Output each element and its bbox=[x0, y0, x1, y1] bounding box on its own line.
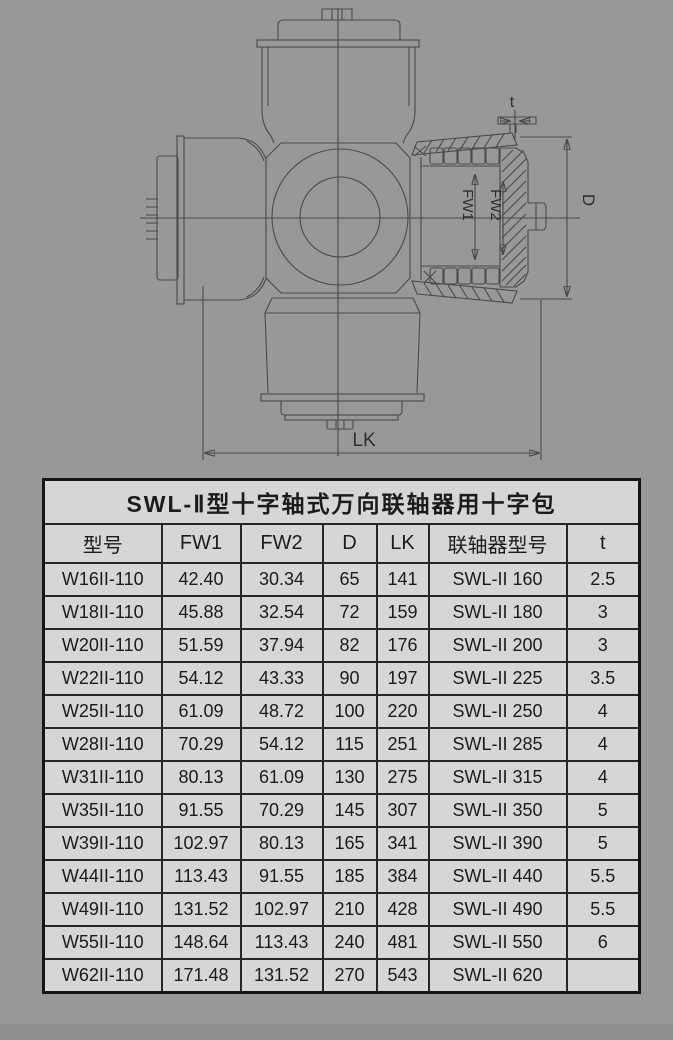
value-cell: SWL-II 160 bbox=[429, 563, 567, 596]
table-title-row: SWL-Ⅱ型十字轴式万向联轴器用十字包 bbox=[44, 480, 640, 525]
model-cell: W20II-110 bbox=[44, 629, 162, 662]
dimension-fw2: FW2 bbox=[487, 182, 504, 254]
column-header: FW2 bbox=[241, 524, 323, 563]
model-cell: W18II-110 bbox=[44, 596, 162, 629]
value-cell: 65 bbox=[323, 563, 377, 596]
table-body: W16II-11042.4030.3465141SWL-II 1602.5W18… bbox=[44, 563, 640, 993]
value-cell: 70.29 bbox=[162, 728, 241, 761]
table-row: W16II-11042.4030.3465141SWL-II 1602.5 bbox=[44, 563, 640, 596]
value-cell: 481 bbox=[377, 926, 429, 959]
value-cell: 4 bbox=[567, 761, 640, 794]
value-cell: 4 bbox=[567, 728, 640, 761]
value-cell: 102.97 bbox=[241, 893, 323, 926]
specification-table: SWL-Ⅱ型十字轴式万向联轴器用十字包 型号FW1FW2DLK联轴器型号t W1… bbox=[42, 478, 641, 994]
model-cell: W35II-110 bbox=[44, 794, 162, 827]
value-cell: 131.52 bbox=[241, 959, 323, 993]
column-header: FW1 bbox=[162, 524, 241, 563]
value-cell bbox=[567, 959, 640, 993]
dimension-lk: LK bbox=[203, 286, 541, 460]
model-cell: W49II-110 bbox=[44, 893, 162, 926]
model-cell: W62II-110 bbox=[44, 959, 162, 993]
value-cell: 61.09 bbox=[241, 761, 323, 794]
value-cell: SWL-II 440 bbox=[429, 860, 567, 893]
d-label: D bbox=[579, 194, 598, 206]
value-cell: 3.5 bbox=[567, 662, 640, 695]
value-cell: SWL-II 285 bbox=[429, 728, 567, 761]
catalog-page: t FW1 FW2 D LK bbox=[0, 0, 673, 1040]
value-cell: 171.48 bbox=[162, 959, 241, 993]
value-cell: 3 bbox=[567, 596, 640, 629]
dimension-fw1: FW1 bbox=[459, 175, 476, 259]
value-cell: 102.97 bbox=[162, 827, 241, 860]
technical-drawing: t FW1 FW2 D LK bbox=[0, 0, 673, 478]
model-cell: W28II-110 bbox=[44, 728, 162, 761]
value-cell: 307 bbox=[377, 794, 429, 827]
value-cell: SWL-II 250 bbox=[429, 695, 567, 728]
value-cell: SWL-II 490 bbox=[429, 893, 567, 926]
value-cell: 54.12 bbox=[241, 728, 323, 761]
value-cell: 185 bbox=[323, 860, 377, 893]
value-cell: 91.55 bbox=[162, 794, 241, 827]
model-cell: W55II-110 bbox=[44, 926, 162, 959]
value-cell: 543 bbox=[377, 959, 429, 993]
model-cell: W16II-110 bbox=[44, 563, 162, 596]
value-cell: 100 bbox=[323, 695, 377, 728]
value-cell: 82 bbox=[323, 629, 377, 662]
table-row: W62II-110171.48131.52270543SWL-II 620 bbox=[44, 959, 640, 993]
value-cell: SWL-II 390 bbox=[429, 827, 567, 860]
value-cell: 159 bbox=[377, 596, 429, 629]
value-cell: 54.12 bbox=[162, 662, 241, 695]
value-cell: 113.43 bbox=[241, 926, 323, 959]
value-cell: SWL-II 620 bbox=[429, 959, 567, 993]
model-cell: W25II-110 bbox=[44, 695, 162, 728]
value-cell: 32.54 bbox=[241, 596, 323, 629]
column-header: LK bbox=[377, 524, 429, 563]
value-cell: 384 bbox=[377, 860, 429, 893]
table-row: W35II-11091.5570.29145307SWL-II 3505 bbox=[44, 794, 640, 827]
value-cell: 197 bbox=[377, 662, 429, 695]
model-cell: W39II-110 bbox=[44, 827, 162, 860]
lk-label: LK bbox=[352, 430, 376, 451]
value-cell: 5 bbox=[567, 827, 640, 860]
right-bearing-section bbox=[412, 117, 546, 303]
table-row: W18II-11045.8832.5472159SWL-II 1803 bbox=[44, 596, 640, 629]
value-cell: 5 bbox=[567, 794, 640, 827]
fw2-label: FW2 bbox=[487, 189, 504, 221]
t-label: t bbox=[510, 94, 515, 111]
value-cell: 30.34 bbox=[241, 563, 323, 596]
column-header: D bbox=[323, 524, 377, 563]
model-cell: W44II-110 bbox=[44, 860, 162, 893]
table-row: W49II-110131.52102.97210428SWL-II 4905.5 bbox=[44, 893, 640, 926]
table-title: SWL-Ⅱ型十字轴式万向联轴器用十字包 bbox=[44, 480, 640, 525]
value-cell: 130 bbox=[323, 761, 377, 794]
value-cell: 6 bbox=[567, 926, 640, 959]
table-row: W25II-11061.0948.72100220SWL-II 2504 bbox=[44, 695, 640, 728]
value-cell: 240 bbox=[323, 926, 377, 959]
value-cell: 90 bbox=[323, 662, 377, 695]
value-cell: SWL-II 225 bbox=[429, 662, 567, 695]
value-cell: 428 bbox=[377, 893, 429, 926]
value-cell: 70.29 bbox=[241, 794, 323, 827]
table-row: W20II-11051.5937.9482176SWL-II 2003 bbox=[44, 629, 640, 662]
value-cell: 165 bbox=[323, 827, 377, 860]
column-header: 型号 bbox=[44, 524, 162, 563]
value-cell: SWL-II 350 bbox=[429, 794, 567, 827]
value-cell: 145 bbox=[323, 794, 377, 827]
value-cell: 270 bbox=[323, 959, 377, 993]
value-cell: 2.5 bbox=[567, 563, 640, 596]
value-cell: 275 bbox=[377, 761, 429, 794]
model-cell: W22II-110 bbox=[44, 662, 162, 695]
value-cell: 113.43 bbox=[162, 860, 241, 893]
value-cell: 80.13 bbox=[162, 761, 241, 794]
value-cell: 61.09 bbox=[162, 695, 241, 728]
value-cell: 3 bbox=[567, 629, 640, 662]
table-row: W28II-11070.2954.12115251SWL-II 2854 bbox=[44, 728, 640, 761]
value-cell: 148.64 bbox=[162, 926, 241, 959]
left-bearing-cup bbox=[146, 136, 266, 304]
value-cell: 115 bbox=[323, 728, 377, 761]
bottom-bearing-cup bbox=[261, 298, 424, 429]
value-cell: 141 bbox=[377, 563, 429, 596]
value-cell: 341 bbox=[377, 827, 429, 860]
model-cell: W31II-110 bbox=[44, 761, 162, 794]
value-cell: SWL-II 180 bbox=[429, 596, 567, 629]
value-cell: 43.33 bbox=[241, 662, 323, 695]
table-row: W22II-11054.1243.3390197SWL-II 2253.5 bbox=[44, 662, 640, 695]
value-cell: 91.55 bbox=[241, 860, 323, 893]
centerlines bbox=[140, 8, 580, 456]
value-cell: 4 bbox=[567, 695, 640, 728]
value-cell: 210 bbox=[323, 893, 377, 926]
value-cell: 176 bbox=[377, 629, 429, 662]
table-row: W55II-110148.64113.43240481SWL-II 5506 bbox=[44, 926, 640, 959]
column-header: 联轴器型号 bbox=[429, 524, 567, 563]
value-cell: 51.59 bbox=[162, 629, 241, 662]
value-cell: 37.94 bbox=[241, 629, 323, 662]
value-cell: 45.88 bbox=[162, 596, 241, 629]
value-cell: 72 bbox=[323, 596, 377, 629]
value-cell: 5.5 bbox=[567, 860, 640, 893]
value-cell: 80.13 bbox=[241, 827, 323, 860]
value-cell: SWL-II 200 bbox=[429, 629, 567, 662]
table-row: W31II-11080.1361.09130275SWL-II 3154 bbox=[44, 761, 640, 794]
value-cell: SWL-II 315 bbox=[429, 761, 567, 794]
value-cell: 42.40 bbox=[162, 563, 241, 596]
table-row: W39II-110102.9780.13165341SWL-II 3905 bbox=[44, 827, 640, 860]
value-cell: 48.72 bbox=[241, 695, 323, 728]
table-row: W44II-110113.4391.55185384SWL-II 4405.5 bbox=[44, 860, 640, 893]
column-header: t bbox=[567, 524, 640, 563]
value-cell: SWL-II 550 bbox=[429, 926, 567, 959]
page-bottom-shadow bbox=[0, 1024, 673, 1040]
value-cell: 5.5 bbox=[567, 893, 640, 926]
value-cell: 251 bbox=[377, 728, 429, 761]
value-cell: 131.52 bbox=[162, 893, 241, 926]
value-cell: 220 bbox=[377, 695, 429, 728]
table-header-row: 型号FW1FW2DLK联轴器型号t bbox=[44, 524, 640, 563]
fw1-label: FW1 bbox=[459, 189, 476, 221]
